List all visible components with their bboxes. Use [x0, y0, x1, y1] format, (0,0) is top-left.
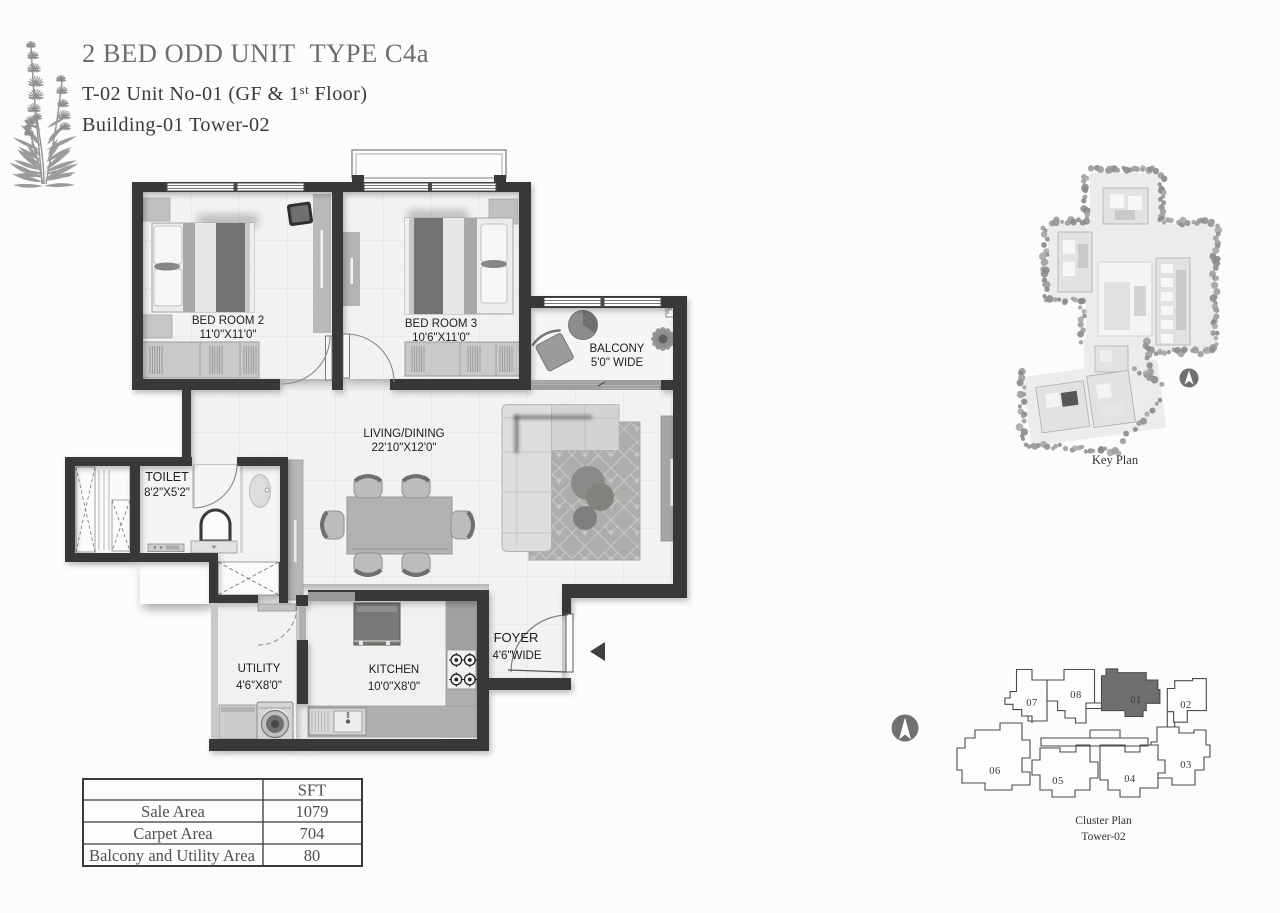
svg-text:BED ROOM 3: BED ROOM 3	[405, 318, 477, 330]
svg-text:05: 05	[1052, 776, 1064, 787]
svg-text:80: 80	[304, 846, 321, 865]
svg-text:07: 07	[1026, 698, 1038, 709]
svg-text:04: 04	[1124, 774, 1136, 785]
svg-text:Tower-02: Tower-02	[1081, 831, 1126, 843]
svg-text:BALCONY: BALCONY	[590, 343, 645, 355]
svg-text:08: 08	[1070, 690, 1082, 701]
svg-text:2 BED ODD UNIT TYPE C4a: 2 BED ODD UNIT TYPE C4a	[82, 38, 430, 68]
svg-text:KITCHEN: KITCHEN	[369, 664, 419, 676]
svg-text:22'10"X12'0": 22'10"X12'0"	[372, 442, 437, 454]
svg-text:SFT: SFT	[298, 781, 326, 800]
svg-text:10'0"X8'0": 10'0"X8'0"	[368, 681, 420, 693]
svg-text:03: 03	[1180, 760, 1192, 771]
svg-text:4'6"WIDE: 4'6"WIDE	[492, 650, 541, 662]
svg-text:06: 06	[989, 766, 1001, 777]
svg-text:Balcony and Utility Area: Balcony and Utility Area	[89, 846, 256, 865]
svg-text:704: 704	[300, 824, 325, 843]
svg-text:UTILITY: UTILITY	[238, 663, 281, 675]
svg-text:Key Plan: Key Plan	[1092, 453, 1139, 467]
svg-text:02: 02	[1180, 700, 1192, 711]
svg-text:Carpet Area: Carpet Area	[133, 824, 213, 843]
svg-text:1079: 1079	[296, 802, 329, 821]
svg-text:8'2"X5'2": 8'2"X5'2"	[144, 487, 190, 499]
svg-text:11'0"X11'0": 11'0"X11'0"	[200, 329, 257, 341]
svg-text:FOYER: FOYER	[494, 630, 539, 645]
svg-text:5'0" WIDE: 5'0" WIDE	[591, 357, 644, 369]
svg-text:10'6"X11'0": 10'6"X11'0"	[412, 332, 470, 344]
svg-text:Sale Area: Sale Area	[141, 802, 205, 821]
svg-text:T-02 Unit No-01 (GF & 1st Floo: T-02 Unit No-01 (GF & 1st Floor)	[82, 82, 367, 105]
svg-text:4'6"X8'0": 4'6"X8'0"	[236, 680, 282, 692]
svg-text:BED ROOM 2: BED ROOM 2	[192, 315, 264, 327]
svg-text:Cluster Plan: Cluster Plan	[1075, 815, 1132, 827]
svg-text:LIVING/DINING: LIVING/DINING	[363, 428, 444, 440]
svg-text:Building-01 Tower-02: Building-01 Tower-02	[82, 114, 270, 136]
svg-text:TOILET: TOILET	[145, 470, 189, 484]
svg-text:01: 01	[1130, 695, 1142, 706]
